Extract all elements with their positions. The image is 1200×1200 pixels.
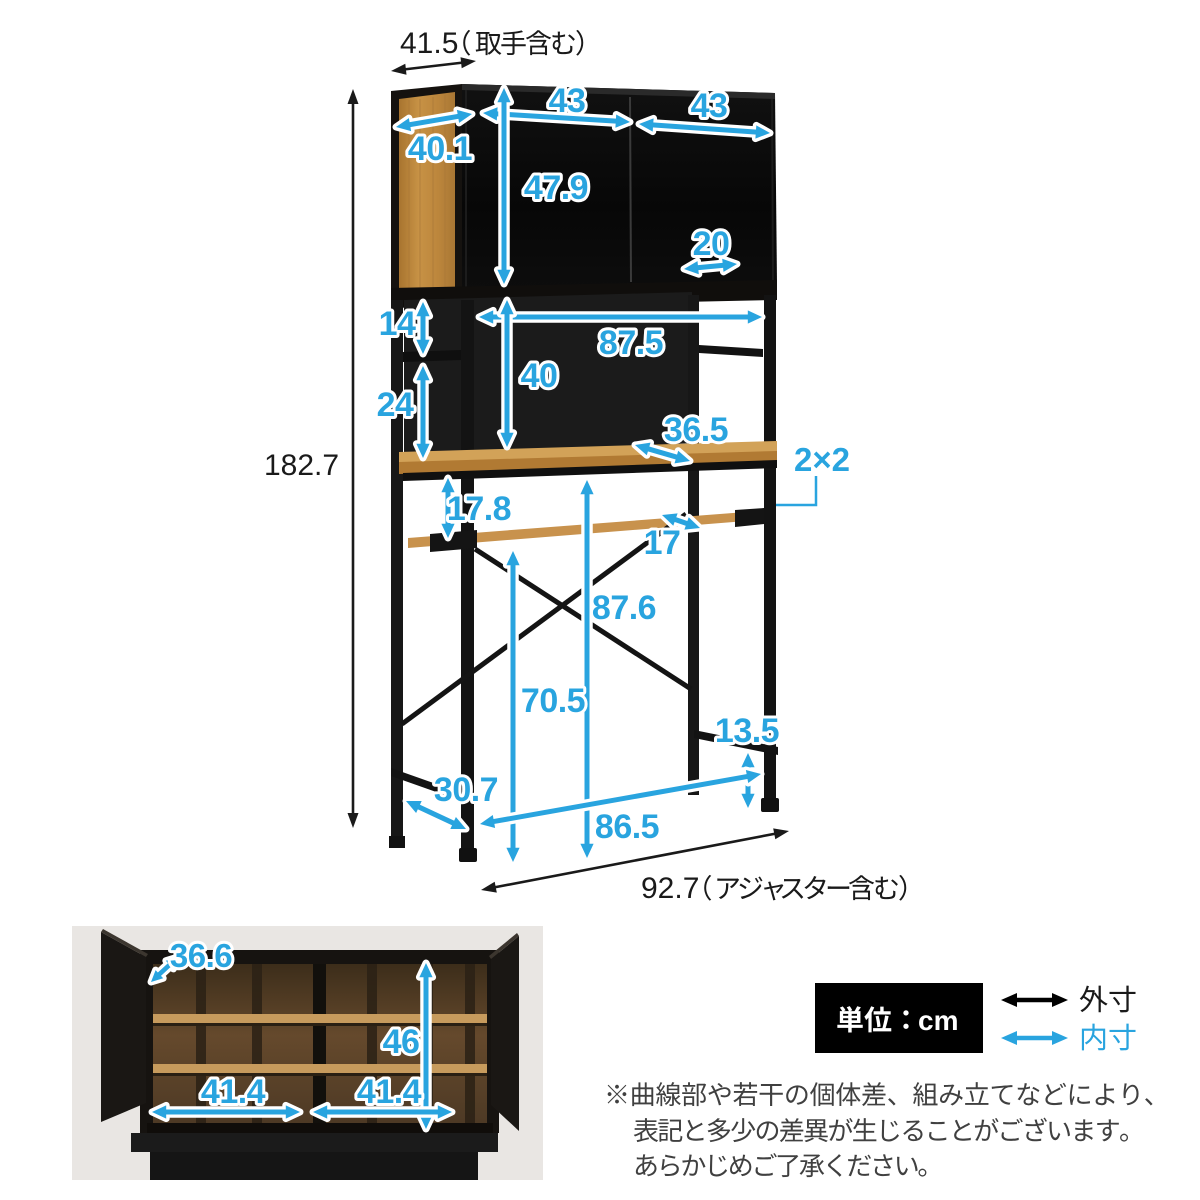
svg-text:13.5: 13.5	[715, 712, 779, 750]
svg-text:40: 40	[521, 357, 558, 395]
svg-text:24: 24	[377, 386, 414, 424]
svg-text:17.8: 17.8	[447, 490, 511, 528]
svg-text:43: 43	[691, 87, 728, 125]
svg-text:92.7: 92.7	[641, 872, 699, 905]
svg-text:41.4: 41.4	[201, 1073, 266, 1111]
svg-text:20: 20	[693, 225, 730, 263]
svg-text:36.6: 36.6	[170, 937, 232, 974]
svg-text:cm: cm	[918, 1005, 958, 1036]
svg-text:2×2: 2×2	[794, 441, 850, 478]
svg-text:87.6: 87.6	[592, 589, 656, 627]
svg-text:46: 46	[383, 1023, 420, 1061]
svg-text:86.5: 86.5	[595, 808, 659, 846]
svg-text:36.5: 36.5	[664, 411, 728, 449]
svg-text:40.1: 40.1	[408, 130, 472, 168]
svg-text:43: 43	[549, 82, 586, 120]
svg-text:14: 14	[379, 305, 416, 343]
svg-text:41.4: 41.4	[357, 1073, 422, 1111]
svg-text:47.9: 47.9	[524, 169, 588, 207]
svg-text:87.5: 87.5	[599, 324, 663, 362]
svg-text:41.5: 41.5	[400, 27, 458, 60]
svg-text:182.7: 182.7	[264, 449, 339, 482]
svg-text:17: 17	[644, 524, 681, 562]
svg-text:30.7: 30.7	[434, 771, 498, 809]
svg-text:70.5: 70.5	[521, 682, 585, 720]
